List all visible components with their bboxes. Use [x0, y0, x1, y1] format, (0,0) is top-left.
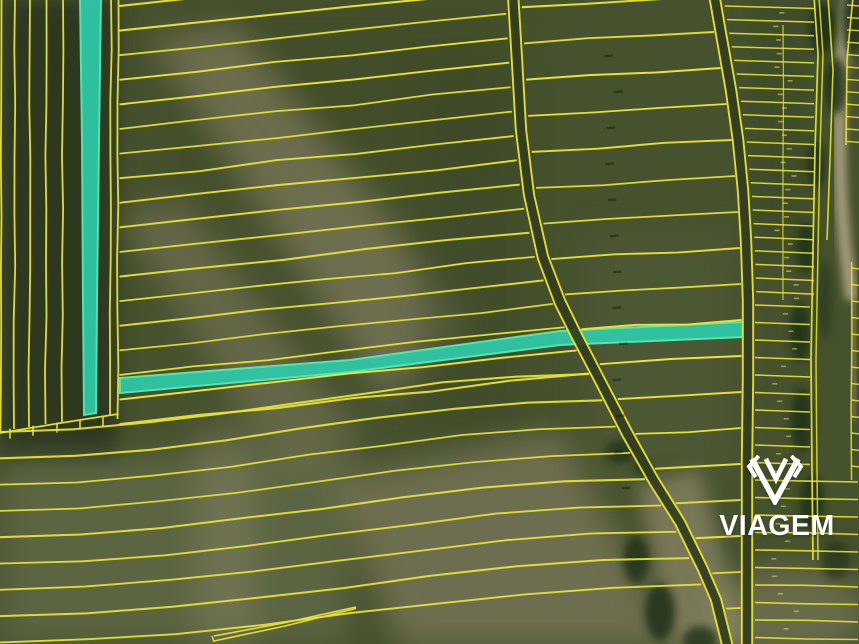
- aerial-map-canvas: [0, 0, 859, 644]
- aerial-cadastral-map-photo: VIAGEM: [0, 0, 859, 644]
